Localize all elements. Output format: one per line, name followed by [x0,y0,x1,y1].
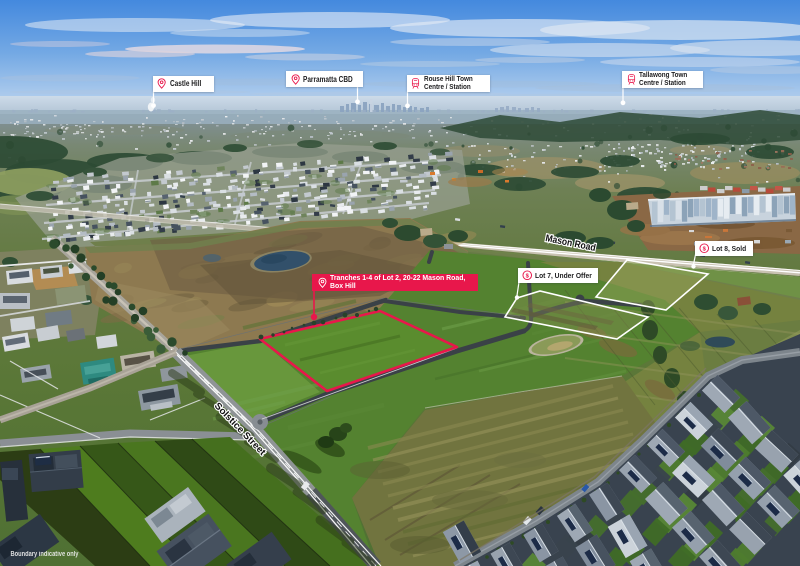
svg-text:Boundary indicative only: Boundary indicative only [11,551,79,558]
